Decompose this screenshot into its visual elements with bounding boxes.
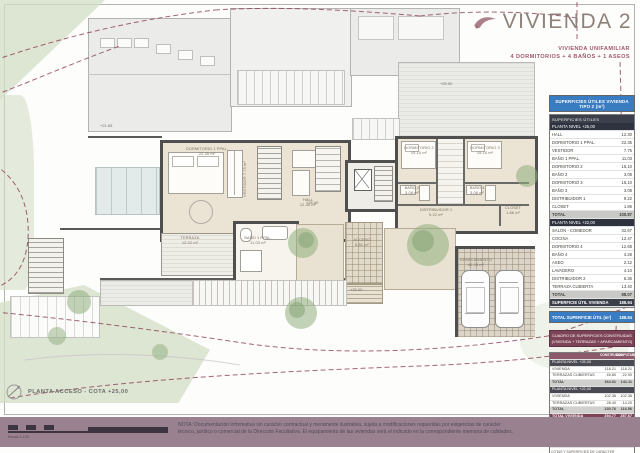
sun-lounger: [100, 38, 115, 48]
wood-deck: [398, 62, 535, 140]
table-row: PLANTA NIVEL +22,00: [550, 219, 634, 227]
table-row: CONSTRUIDACOMPUTABLE: [550, 353, 634, 360]
table-row: PLANTA NIVEL +25,00: [550, 123, 634, 131]
page-title: VIVIENDA 2: [503, 10, 632, 34]
skylight: [398, 16, 444, 40]
car: [461, 270, 490, 328]
table-row: CLOSET1.86: [550, 203, 634, 211]
room-label-dormitorio-1: DORMITORIO 1 PPAL.22.35 m²: [172, 147, 242, 156]
stairs: [315, 146, 341, 192]
table-row: DISTRIBUIDOR 26.35: [550, 275, 634, 283]
title-block: VIVIENDA 2: [472, 10, 632, 34]
utiles-table: PLANTA NIVEL +25,00 HALL12.30 DORMITORIO…: [550, 123, 634, 307]
level-marker: +25.00: [440, 81, 452, 86]
stairs: [257, 146, 282, 200]
level-marker: +25.00: [306, 200, 318, 205]
table-row: DISTRIBUIDOR 19.22: [550, 195, 634, 203]
table-row: DORMITORIO 315.10: [550, 179, 634, 187]
table-row: BAÑO 33.08: [550, 187, 634, 195]
plan-title-label: PLANTA ACCESO - COTA +25,00: [28, 389, 128, 395]
shower: [240, 250, 262, 272]
planter-row: [10, 296, 100, 338]
louver-band: [192, 280, 347, 306]
site-wall: [60, 228, 161, 230]
table-row: TOTAL100.87: [550, 211, 634, 219]
table-row: TOTAL130.76116.56: [550, 407, 634, 414]
table-row: VESTIDOR7.75: [550, 147, 634, 155]
pool: [95, 167, 160, 215]
car: [495, 270, 524, 328]
skylight: [358, 16, 394, 40]
table-row: BAÑO 23.08: [550, 171, 634, 179]
pergola-grid: [352, 118, 400, 140]
sofa: [292, 170, 310, 196]
wardrobe: [227, 150, 243, 198]
construidas-header: CUADRO DE SUPERFICIES CONSTRUIDAS (VIVIE…: [549, 330, 635, 347]
table-row: VIVIENDA102.36102.36: [550, 394, 634, 401]
round-table: [189, 200, 213, 224]
table-footnote: COTAS Y SUPERFICIES DE CARÁCTER ORIENTAT…: [550, 448, 634, 453]
site-wall: [88, 136, 162, 138]
room-label-dormitorio-3: DORMITORIO 315.10 m²: [464, 146, 506, 155]
roof-terrace: [88, 18, 232, 132]
table-row: HALL12.30: [550, 131, 634, 139]
partition-wall: [398, 182, 436, 184]
bed: [168, 152, 224, 194]
room-label-vestidor: VESTIDOR 7.75 m²: [243, 158, 248, 200]
room-label-bano-2: BAÑO 23.08 m²: [398, 186, 426, 195]
table-row: PLANTA NIVEL +25,00: [550, 360, 634, 367]
scale-label: Escala 1:100: [8, 435, 29, 439]
sun-lounger: [117, 38, 132, 48]
table-row: DORMITORIO 1 PPAL.22.35: [550, 139, 634, 147]
partition-wall: [464, 182, 529, 184]
sun-lounger: [156, 44, 171, 54]
areas-table-column: SUPERFICIES ÚTILES VIVIENDA TIPO 2 (m²) …: [549, 95, 635, 453]
table-total-row: TOTAL SUPERFICIE ÚTIL (m²)188.94: [549, 311, 635, 323]
title-subtitle: VIVIENDA UNIFAMILIAR 4 DORMITORIOS + 4 B…: [510, 46, 630, 61]
table-row: LAVADERO4.10: [550, 267, 634, 275]
table-main-header: SUPERFICIES ÚTILES VIVIENDA TIPO 2 (m²): [549, 95, 635, 112]
room-label-bano-1: BAÑO 1 PPAL.11.03 m²: [232, 236, 284, 245]
sun-lounger: [178, 50, 193, 60]
footer-strip: Escala 1:100 NOTA: Documentación informa…: [0, 417, 640, 447]
elevator: [354, 169, 372, 191]
table-row: BAÑO 44.28: [550, 251, 634, 259]
table-row: SUPERFICIE ÚTIL VIVIENDA188.94: [550, 299, 634, 307]
exterior-stairs: [28, 238, 64, 294]
pergola-grid: [237, 70, 345, 105]
table-row: PLANTA NIVEL +22,00: [550, 387, 634, 394]
table-row: TERRAZAS CUBIERTAS28.4014.20: [550, 401, 634, 408]
table-row: TOTAL88.07: [550, 291, 634, 299]
room-label-bano-3: BAÑO 33.08 m²: [463, 186, 491, 195]
level-marker: +21.65: [100, 123, 112, 128]
sun-lounger: [134, 38, 149, 48]
linen-closet: [438, 139, 463, 204]
room-label-dormitorio-2: DORMITORIO 215.10 m²: [398, 146, 440, 155]
lower-deck-band: [100, 280, 194, 306]
sun-lounger: [200, 56, 215, 66]
room-label-terraza: TERRAZA12.02 m²: [165, 236, 215, 245]
room-label-aparcamiento: APARCAMIENTO40.28 m²: [446, 258, 506, 267]
courtyard: [296, 224, 344, 288]
drawing-sheet-page: DORMITORIO 1 PPAL.22.35 m² VESTIDOR 7.75…: [0, 0, 640, 453]
table-row: TERRAZAS CUBIERTAS45.8022.90: [550, 373, 634, 380]
table-row: VIVIENDA118.21118.21: [550, 367, 634, 374]
room-label-distribuidor: DISTRIBUIDOR 19.22 m²: [408, 208, 464, 217]
roof-divider-line: [88, 74, 230, 75]
access-path: [345, 222, 383, 284]
table-row: ASEO2.12: [550, 259, 634, 267]
table-section-header: SUPERFICIES ÚTILES: [550, 115, 634, 123]
table-row: DORMITORIO 412.68: [550, 243, 634, 251]
room-label-closet: CLOSET1.86 m²: [500, 206, 526, 215]
table-row: DORMITORIO 215.10: [550, 163, 634, 171]
table-row: COCINA12.47: [550, 235, 634, 243]
brand-logo-icon: [472, 14, 498, 30]
table-row: TERRAZA CUBIERTA13.40: [550, 283, 634, 291]
table-row: SALÓN - COMEDOR32.67: [550, 227, 634, 235]
table-row: TOTAL164.01141.11: [550, 380, 634, 387]
level-marker: +25.00: [350, 287, 362, 292]
table-row: BAÑO 1 PPAL.11.03: [550, 155, 634, 163]
stairs: [374, 166, 393, 202]
room-label-acceso: ACCESO5.81 m²: [342, 238, 382, 247]
disclaimer-note: NOTA: Documentación informativa sin cará…: [178, 422, 598, 436]
